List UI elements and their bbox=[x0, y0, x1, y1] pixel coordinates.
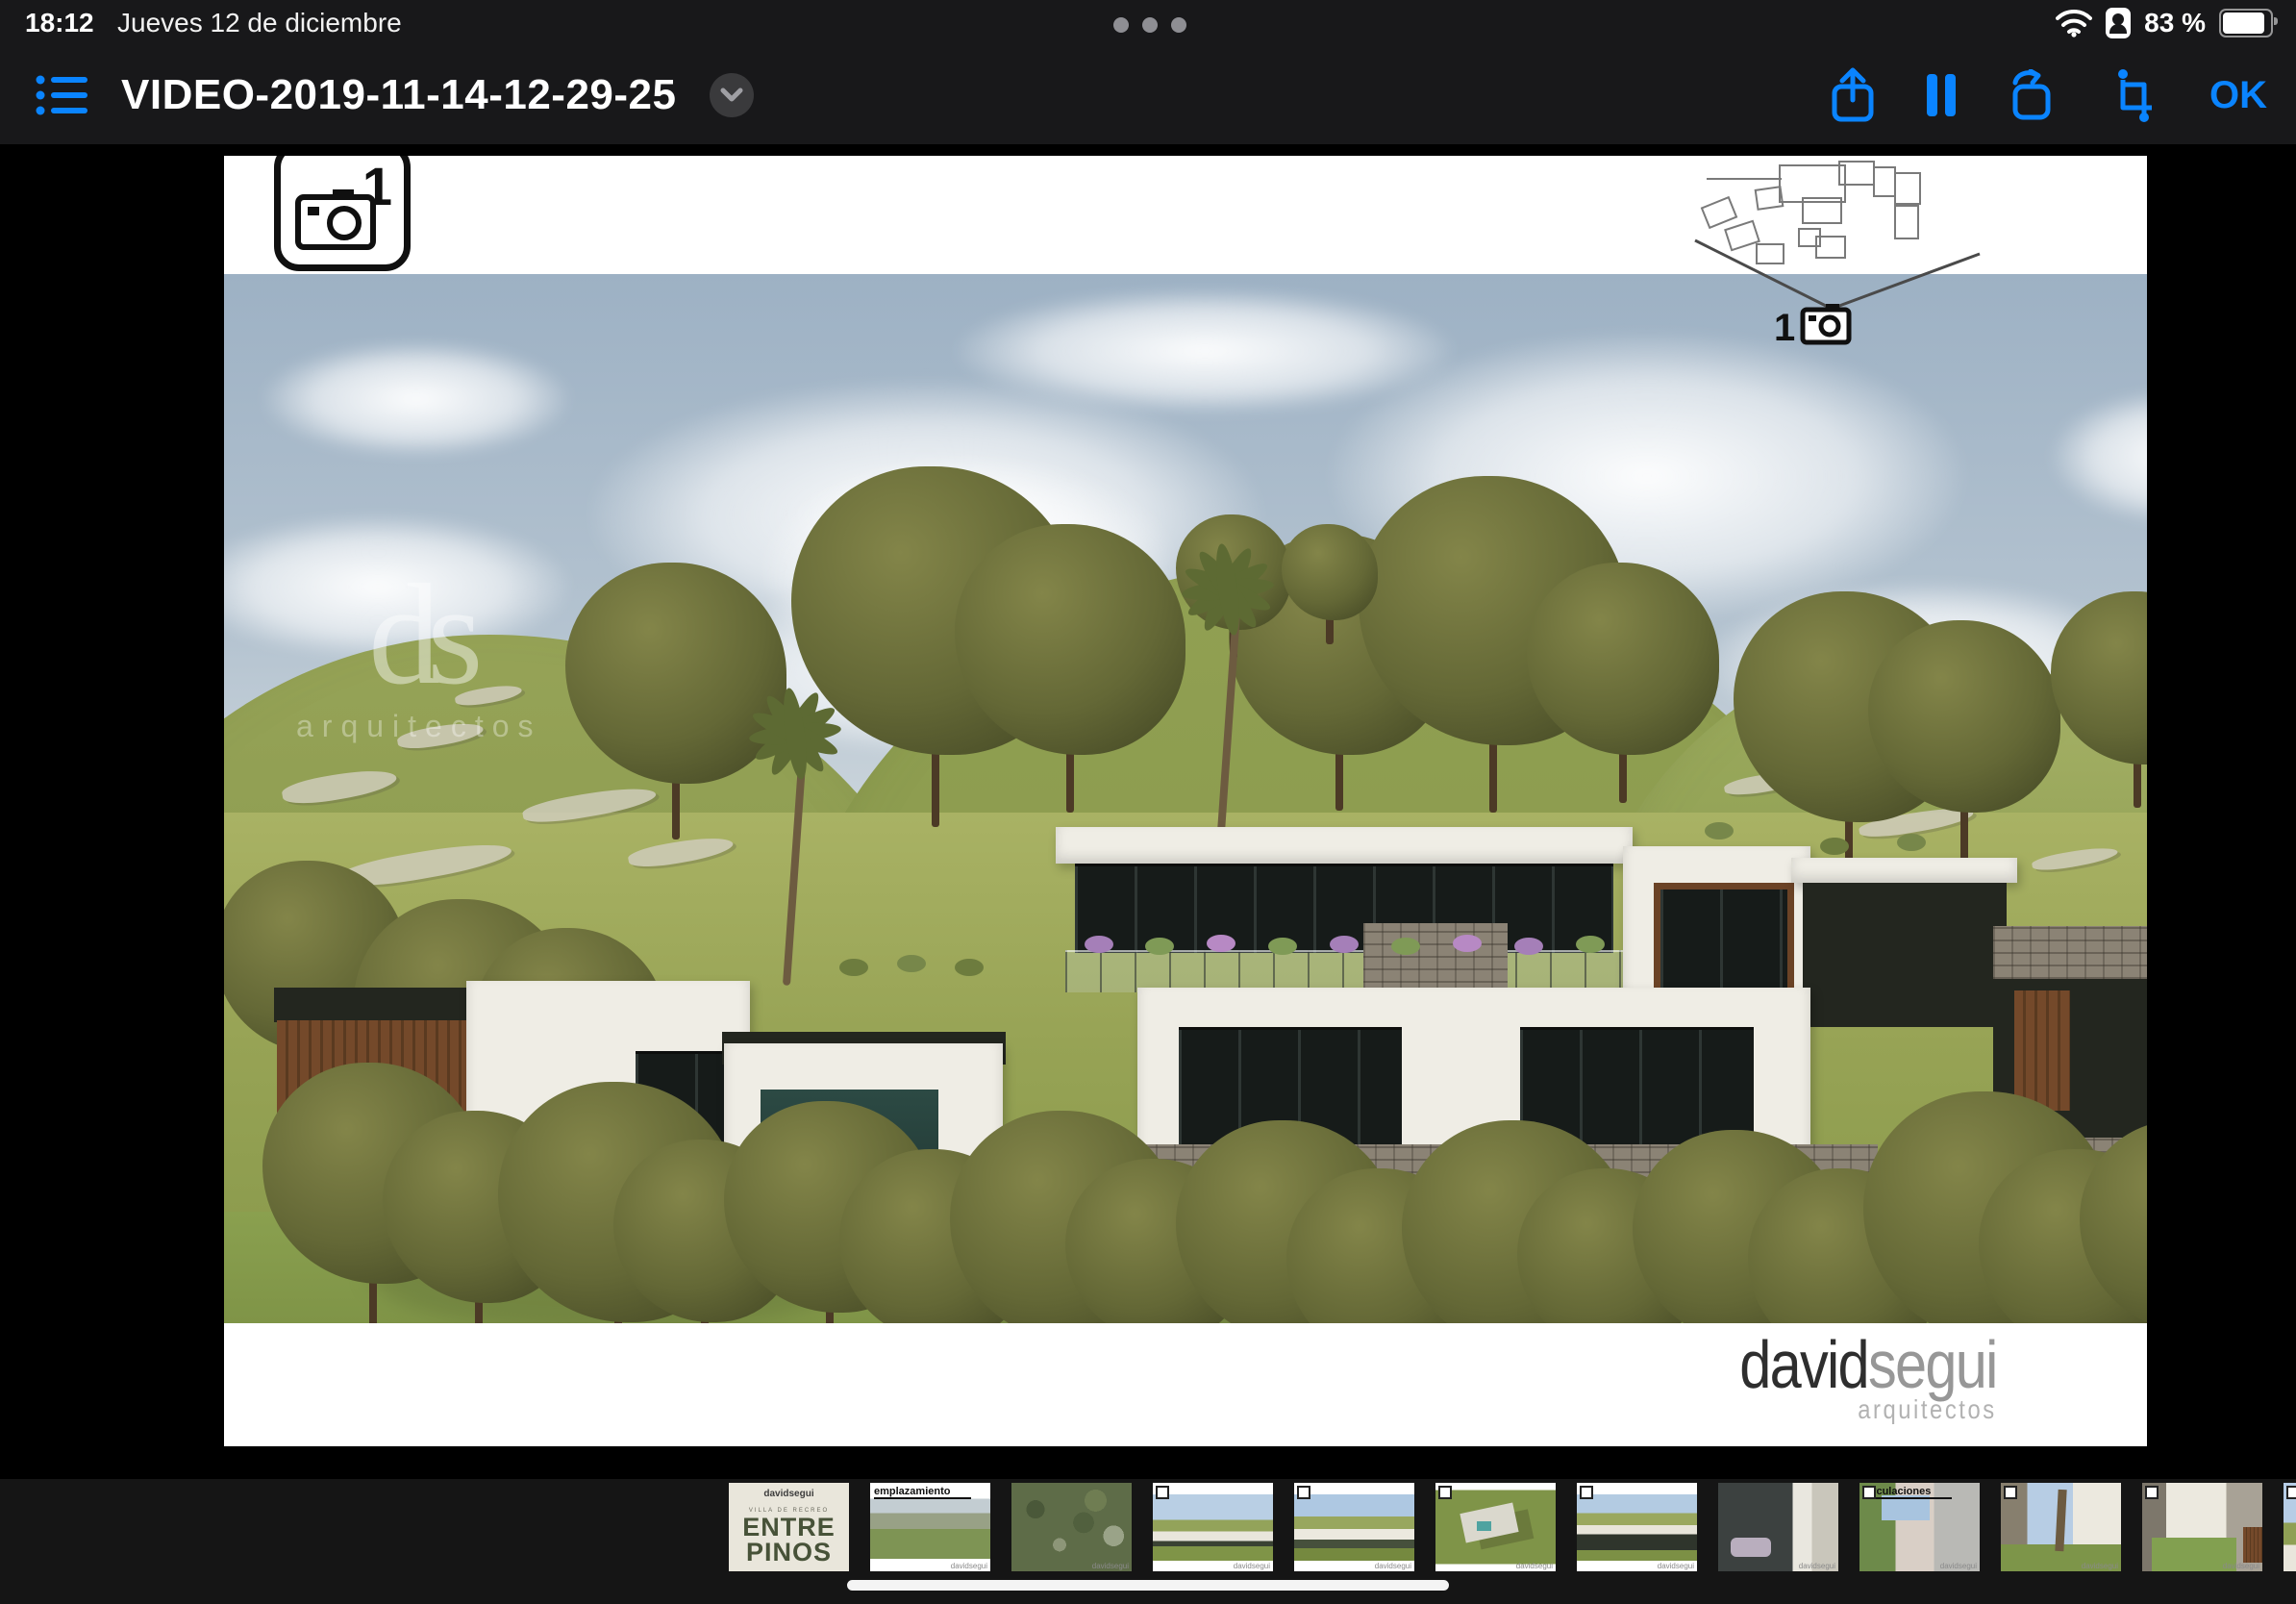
thumbnail-watermark: davidsegui bbox=[1375, 1562, 1411, 1570]
thumbnail-render-terrace[interactable]: davidsegui bbox=[1577, 1483, 1697, 1571]
video-title: VIDEO-2019-11-14-12-29-25 bbox=[121, 71, 677, 119]
planter-shrub bbox=[1705, 822, 1734, 840]
background-tree bbox=[2051, 591, 2147, 808]
diagram-camera-icon bbox=[1803, 304, 1849, 342]
battery-icon bbox=[2219, 9, 2273, 38]
crop-button[interactable] bbox=[2108, 67, 2159, 123]
thumbnail-title-slide[interactable]: davidseguiVILLA DE RECREOENTREPINOS bbox=[729, 1483, 849, 1571]
thumbnail-render-hillside[interactable]: davidsegui bbox=[1153, 1483, 1273, 1571]
planter-shrub bbox=[1268, 938, 1297, 955]
cloud bbox=[262, 341, 570, 457]
list-button[interactable] bbox=[35, 70, 88, 120]
cloud bbox=[955, 288, 1455, 414]
thumbnail-patio-palms[interactable]: davidsegui bbox=[2001, 1483, 2121, 1571]
ok-button[interactable]: OK bbox=[2209, 74, 2267, 117]
building-volume bbox=[1654, 883, 1794, 1004]
planter-shrub bbox=[1453, 935, 1482, 952]
video-frame: ds arquitectos 1 bbox=[224, 156, 2147, 1446]
background-tree bbox=[1527, 563, 1719, 803]
thumbnail-watermark: davidsegui bbox=[1234, 1562, 1270, 1570]
thumbnail-render-partial[interactable]: davidsegui bbox=[2284, 1483, 2296, 1571]
background-tree bbox=[565, 563, 786, 840]
planter-shrub bbox=[955, 959, 984, 976]
toolbar: VIDEO-2019-11-14-12-29-25 bbox=[0, 46, 2296, 144]
bottom-band: davidsegui arquitectos bbox=[224, 1323, 2147, 1446]
building-volume bbox=[1993, 926, 2147, 979]
status-time: 18:12 bbox=[25, 8, 94, 38]
thumbnail-watermark: davidsegui bbox=[2082, 1562, 2118, 1570]
rotate-button[interactable] bbox=[2008, 69, 2058, 121]
pause-button[interactable] bbox=[1925, 72, 1958, 118]
planter-shrub bbox=[1897, 834, 1926, 851]
planter-shrub bbox=[1391, 938, 1420, 955]
planter-shrub bbox=[1514, 938, 1543, 955]
multitasking-dots-icon[interactable] bbox=[1113, 17, 1186, 33]
background-tree bbox=[1868, 620, 2060, 861]
building-volume bbox=[1791, 858, 2017, 883]
building-volume bbox=[1056, 827, 1633, 864]
thumbnail-watermark: davidsegui bbox=[1092, 1562, 1129, 1570]
planter-shrub bbox=[1820, 838, 1849, 855]
thumbnail-watermark: davidsegui bbox=[1799, 1562, 1835, 1570]
building-volume bbox=[1065, 950, 1623, 992]
mini-camera-badge-icon bbox=[1297, 1486, 1310, 1499]
planter-shrub bbox=[1085, 936, 1113, 953]
thumbnail-facade-dark[interactable]: davidsegui bbox=[1718, 1483, 1838, 1571]
mini-camera-badge-icon bbox=[2286, 1486, 2296, 1499]
render-scene: ds arquitectos bbox=[224, 274, 2147, 1323]
planter-shrub bbox=[897, 955, 926, 972]
home-indicator[interactable] bbox=[847, 1580, 1449, 1591]
diagram-camera-number: 1 bbox=[1774, 307, 1795, 349]
planter-shrub bbox=[839, 959, 868, 976]
status-date: Jueves 12 de diciembre bbox=[117, 8, 402, 38]
planter-shrub bbox=[1145, 938, 1174, 955]
mini-camera-badge-icon bbox=[1862, 1486, 1876, 1499]
siteplan-diagram: 1 bbox=[1685, 156, 2003, 359]
planter-shrub bbox=[1576, 936, 1605, 953]
thumbnail-circulaciones[interactable]: circulacionesdavidsegui bbox=[1859, 1483, 1980, 1571]
thumbnail-label: circulaciones bbox=[1863, 1486, 1952, 1499]
share-button[interactable] bbox=[1831, 67, 1875, 123]
foreground-tree bbox=[2080, 1120, 2147, 1323]
camera-badge: 1 bbox=[274, 156, 411, 271]
thumbnail-watermark: davidsegui bbox=[2223, 1562, 2259, 1570]
planter-shrub bbox=[1207, 935, 1235, 952]
status-bar: 18:12 Jueves 12 de diciembre 83 % bbox=[0, 0, 2296, 46]
title-menu-button[interactable] bbox=[710, 73, 754, 117]
thumbnail-patio-lawn[interactable]: davidsegui bbox=[2142, 1483, 2262, 1571]
background-tree bbox=[955, 524, 1185, 813]
brand-watermark: davidsegui arquitectos bbox=[1740, 1331, 1997, 1425]
thumbnail-aerial-render[interactable]: davidsegui bbox=[1435, 1483, 1556, 1571]
mini-camera-badge-icon bbox=[1580, 1486, 1593, 1499]
building-volume bbox=[1803, 883, 2007, 1027]
thumbnail-watermark: davidsegui bbox=[1658, 1562, 1694, 1570]
mini-camera-badge-icon bbox=[1156, 1486, 1169, 1499]
thumbnail-watermark: davidsegui bbox=[951, 1562, 987, 1570]
thumbnail-emplazamiento[interactable]: emplazamientodavidsegui bbox=[870, 1483, 990, 1571]
video-stage[interactable]: ds arquitectos 1 bbox=[0, 144, 2296, 1479]
background-tree bbox=[1282, 524, 1378, 644]
thumbnail-label: emplazamiento bbox=[874, 1486, 971, 1499]
planter-shrub bbox=[1330, 936, 1359, 953]
thumbnail-watermark: davidsegui bbox=[1516, 1562, 1553, 1570]
thumbnail-satellite[interactable]: davidsegui bbox=[1011, 1483, 1132, 1571]
header: 18:12 Jueves 12 de diciembre 83 % bbox=[0, 0, 2296, 144]
wifi-icon bbox=[2056, 9, 2092, 38]
thumbnail-watermark: davidsegui bbox=[1940, 1562, 1977, 1570]
ds-watermark: ds arquitectos bbox=[296, 563, 542, 744]
mini-camera-badge-icon bbox=[2145, 1486, 2159, 1499]
thumbnail-render-hillside-2[interactable]: davidsegui bbox=[1294, 1483, 1414, 1571]
personal-hotspot-icon bbox=[2106, 8, 2131, 38]
mini-camera-badge-icon bbox=[1438, 1486, 1452, 1499]
battery-percent: 83 % bbox=[2144, 8, 2206, 38]
cloud bbox=[2051, 389, 2147, 524]
mini-camera-badge-icon bbox=[2004, 1486, 2017, 1499]
chevron-down-icon bbox=[720, 88, 743, 103]
